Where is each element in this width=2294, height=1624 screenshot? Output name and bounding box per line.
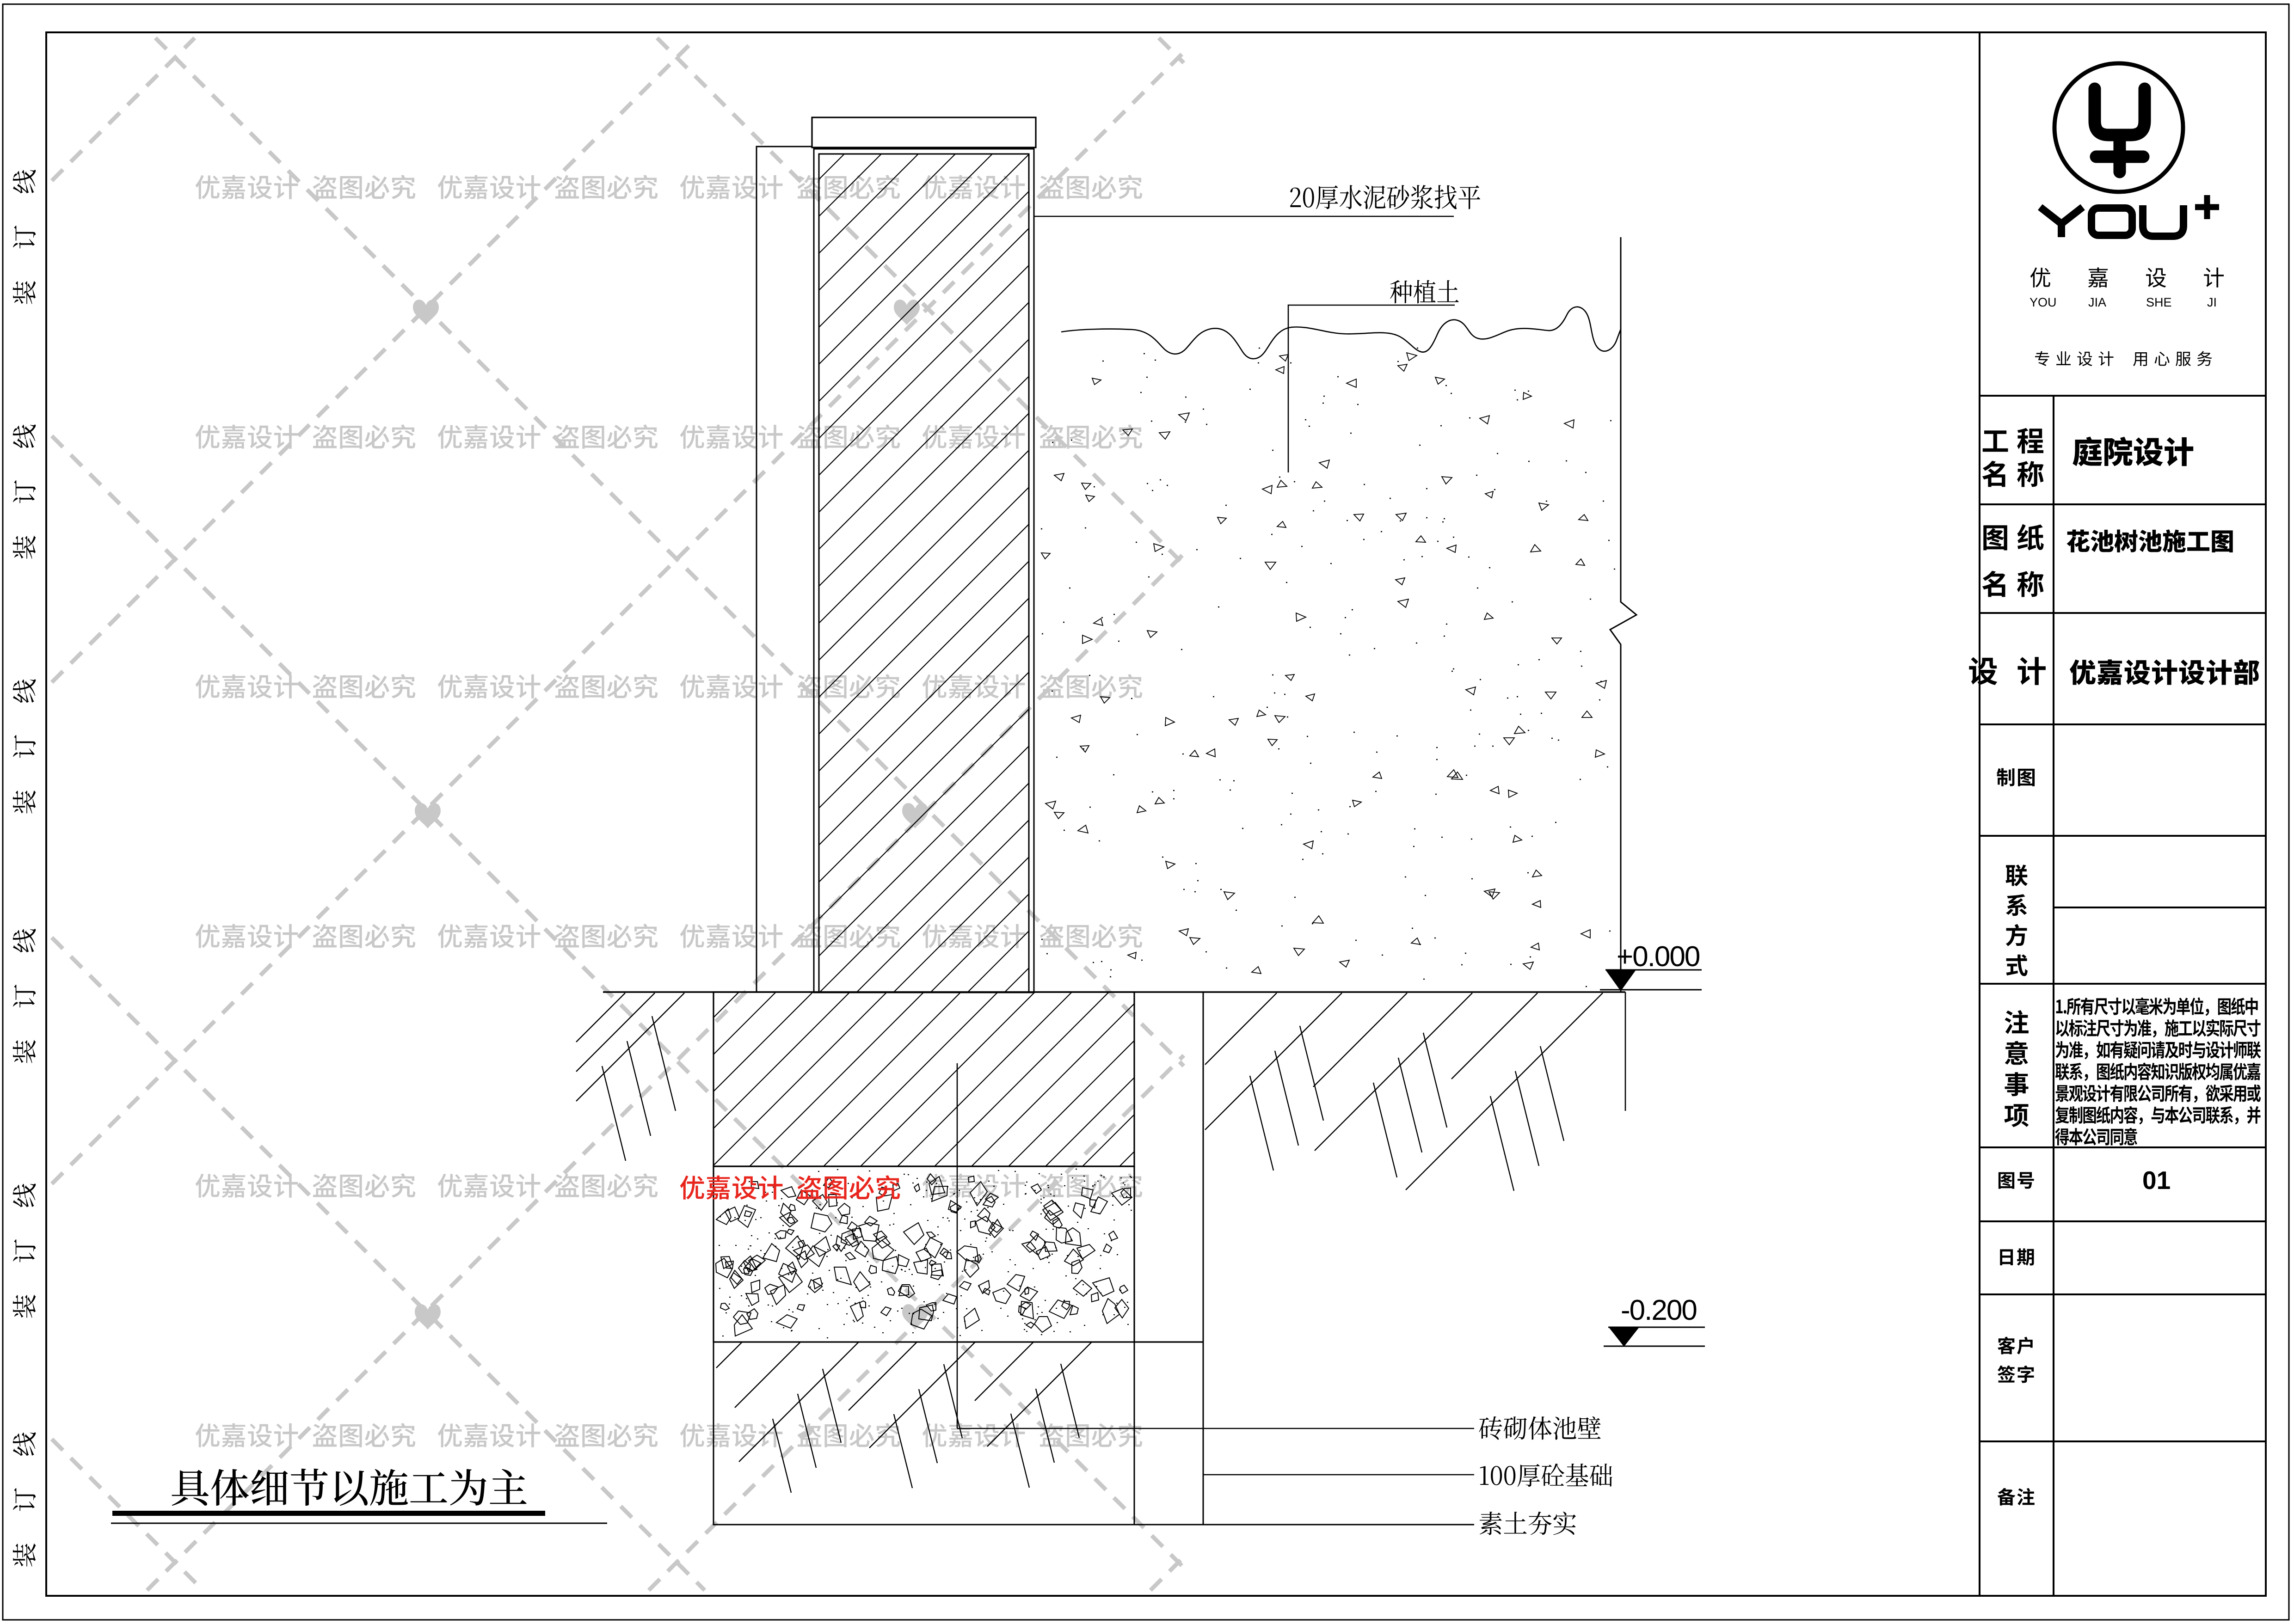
svg-text:YOUJIASHEJI: YOUJIASHEJI xyxy=(2030,295,2217,309)
svg-text:+0.000: +0.000 xyxy=(1617,941,1700,973)
svg-text:-0.200: -0.200 xyxy=(1621,1294,1697,1326)
svg-text:01: 01 xyxy=(2142,1166,2171,1195)
